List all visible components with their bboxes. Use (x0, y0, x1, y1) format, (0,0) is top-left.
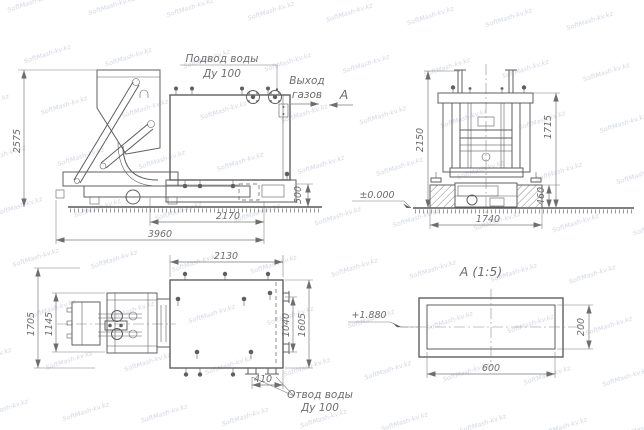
dim-1040: 1040 (281, 313, 292, 337)
dim-500: 500 (293, 186, 304, 204)
dim-200: 200 (576, 318, 587, 336)
water-outlet-label-1: Отвод воды (287, 389, 353, 401)
dim-410: 410 (254, 374, 272, 385)
dim-2150: 2150 (415, 128, 426, 152)
dim-600: 600 (482, 363, 500, 374)
level-zero-text: ±0.000 (359, 190, 394, 201)
detail-a-title: А (1:5) (459, 264, 502, 279)
dim-1715: 1715 (543, 115, 554, 139)
dim-2575: 2575 (12, 129, 23, 153)
gas-outlet-callout: Выход газов (289, 75, 324, 104)
level-1880-text: +1.880 (351, 310, 386, 321)
dim-460: 460 (536, 187, 547, 205)
water-inlet-label-1: Подвод воды (186, 53, 259, 65)
dim-2130: 2130 (214, 251, 238, 262)
dim-1740: 1740 (476, 214, 500, 225)
drawing-canvas: SoftMash-kv.kz SoftMash-kv.kz (0, 0, 644, 430)
gas-outlet-label-2: газов (292, 89, 322, 101)
water-outlet-label-2: Ду 100 (300, 402, 339, 414)
technical-drawing-page: SoftMash-kv.kz SoftMash-kv.kz (0, 0, 644, 430)
dim-1605: 1605 (297, 313, 308, 337)
water-inlet-label-2: Ду 100 (202, 68, 241, 80)
dim-1705: 1705 (26, 312, 37, 336)
watermark-layer (0, 0, 644, 430)
dim-2170: 2170 (216, 211, 240, 222)
view-a-letter: А (339, 87, 349, 102)
gas-outlet-label-1: Выход (289, 75, 324, 87)
dim-3960: 3960 (148, 229, 172, 240)
dim-1145: 1145 (44, 312, 55, 336)
